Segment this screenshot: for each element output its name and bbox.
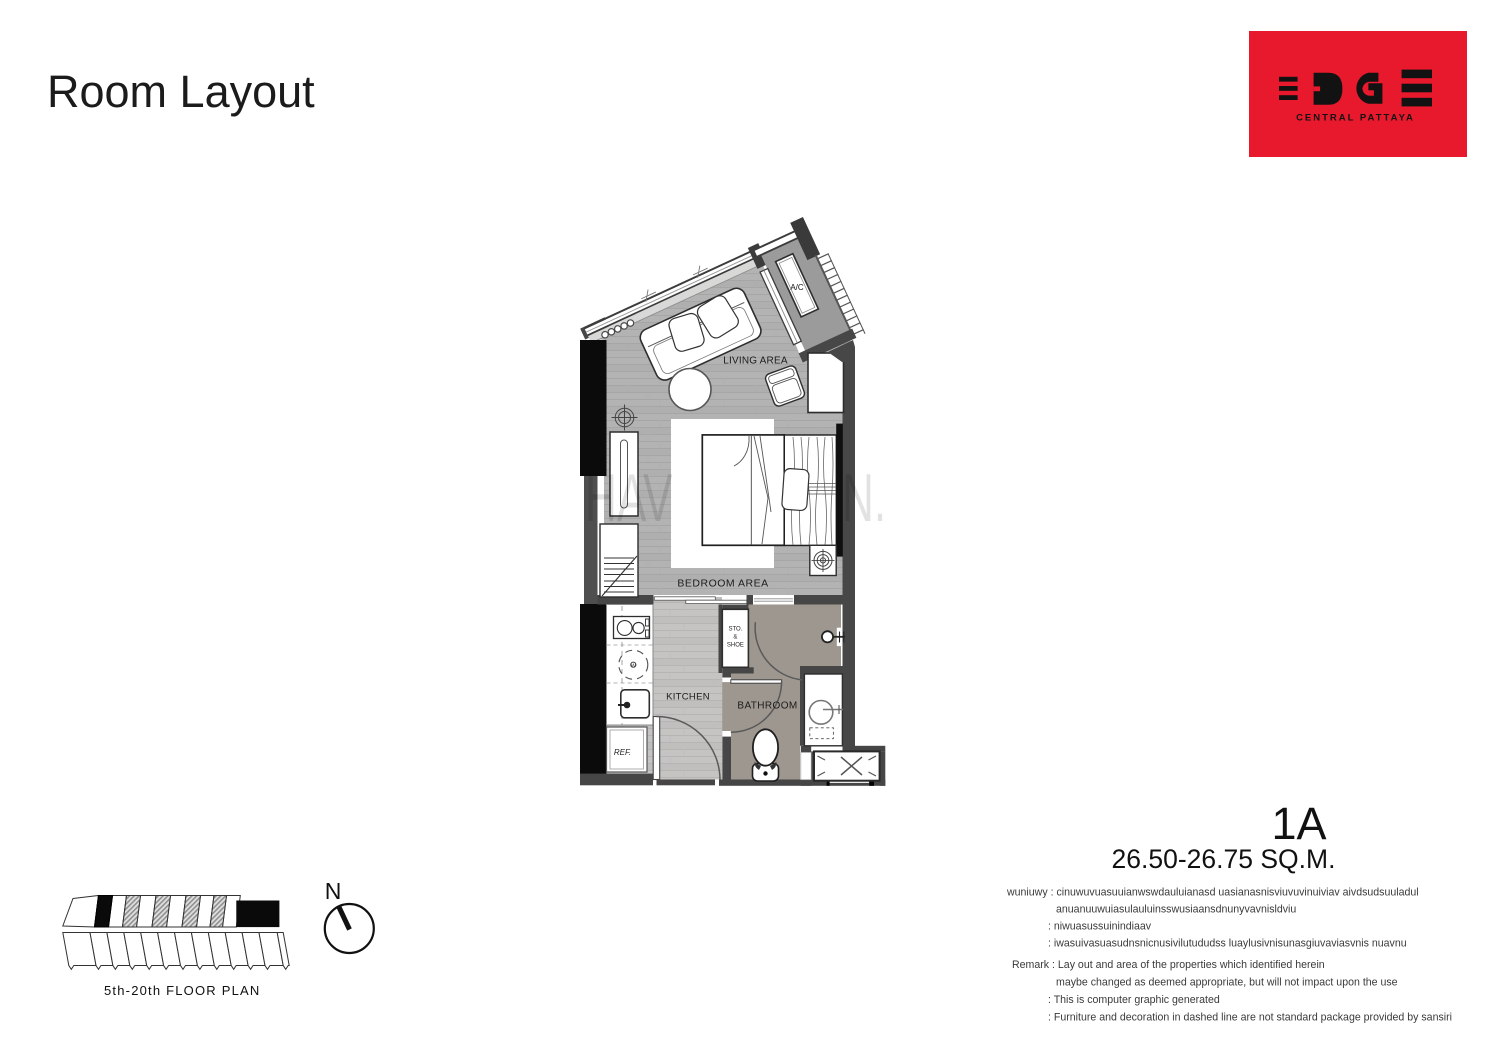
- svg-text:SHOE: SHOE: [727, 643, 744, 649]
- svg-text:BATHROOM: BATHROOM: [737, 701, 797, 712]
- svg-text:: iwasuivasuasudnsnicnusivilut: : iwasuivasuasudnsnicnusivilutududss lua…: [1048, 938, 1407, 950]
- svg-text:KITCHEN: KITCHEN: [666, 692, 710, 703]
- svg-text:STO.: STO.: [728, 627, 742, 633]
- svg-text:W: W: [631, 663, 637, 669]
- svg-text:anuanuuwuiasulauluinsswusiaans: anuanuuwuiasulauluinsswusiaansdnunyvavni…: [1056, 904, 1296, 916]
- svg-text:Remark : Lay out and area of t: Remark : Lay out and area of the propert…: [1012, 959, 1325, 971]
- svg-text:N.: N.: [842, 461, 886, 537]
- svg-text:5th-20th FLOOR PLAN: 5th-20th FLOOR PLAN: [104, 983, 260, 998]
- svg-text:: Furniture and decoration in: : Furniture and decoration in dashed lin…: [1048, 1012, 1452, 1024]
- svg-text:1A: 1A: [1271, 798, 1326, 849]
- svg-text:A/C: A/C: [790, 283, 804, 292]
- svg-text:: This is computer graphic ge: : This is computer graphic generated: [1048, 994, 1220, 1006]
- svg-text:: niwuasussuinindiaav: : niwuasussuinindiaav: [1048, 921, 1152, 933]
- svg-text:Room Layout: Room Layout: [47, 66, 315, 117]
- svg-text:BEDROOM AREA: BEDROOM AREA: [677, 578, 768, 590]
- svg-text:&: &: [733, 635, 737, 641]
- svg-text:CENTRAL PATTAYA: CENTRAL PATTAYA: [1296, 113, 1415, 124]
- svg-text:wuniuwy : cinuwuvuasuuianwswda: wuniuwy : cinuwuvuasuuianwswdauluianasd …: [1006, 887, 1419, 899]
- svg-text:REF.: REF.: [614, 748, 631, 757]
- svg-text:maybe changed as deemed approp: maybe changed as deemed appropriate, but…: [1056, 977, 1398, 989]
- svg-text:N: N: [325, 878, 342, 904]
- svg-text:26.50-26.75 SQ.M.: 26.50-26.75 SQ.M.: [1112, 844, 1336, 874]
- svg-text:LIVING AREA: LIVING AREA: [723, 356, 788, 367]
- svg-text:HAV: HAV: [585, 461, 673, 537]
